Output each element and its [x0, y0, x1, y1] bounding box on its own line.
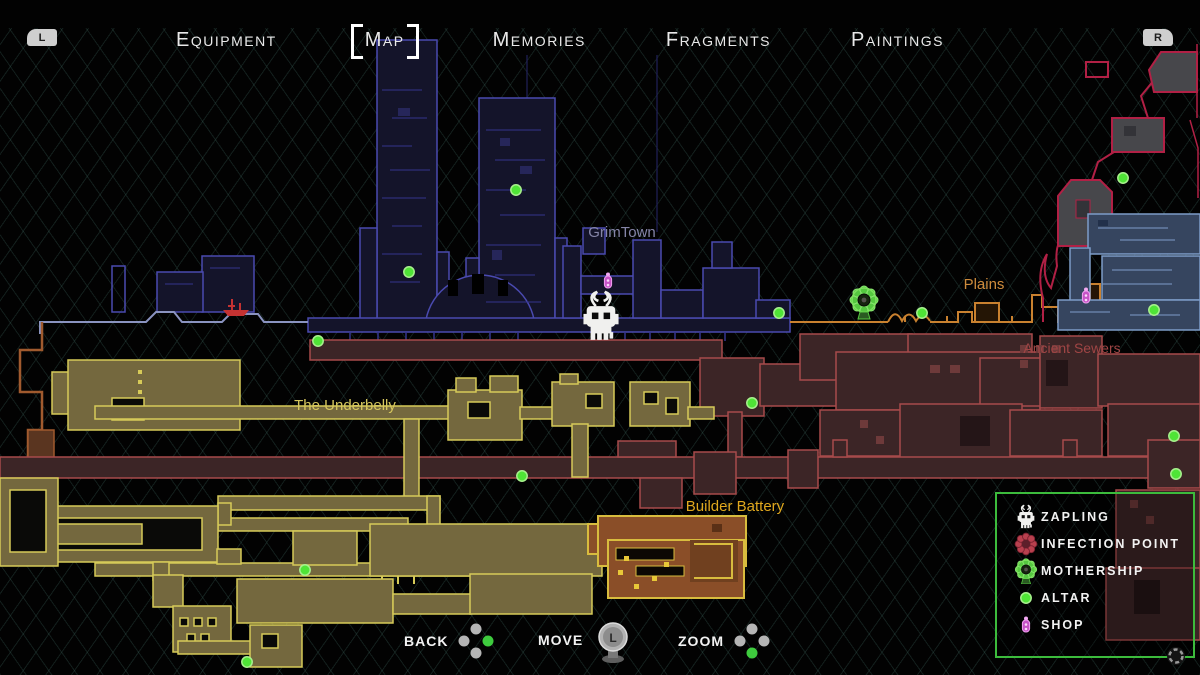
menu-tabs: Equipment Map Memories Fragments Paintin… [170, 26, 950, 55]
legend-row-zapling: ZAPLING [1011, 503, 1193, 530]
altar-marker [1171, 469, 1181, 479]
shop-icon [1011, 612, 1041, 638]
legend-label: MOTHERSHIP [1041, 564, 1144, 578]
tab-memories[interactable]: Memories [487, 26, 592, 55]
altar-marker [242, 657, 252, 667]
zoom-label: ZOOM [678, 633, 724, 649]
region-label-builder-battery: Builder Battery [686, 498, 785, 515]
map-region-grimtown [112, 40, 790, 341]
dpad-right-icon[interactable] [457, 622, 495, 660]
left-stick-icon[interactable]: L [592, 616, 634, 664]
altar-icon [1011, 585, 1041, 611]
map-screen: GrimTownPlainsAncient SewersThe Underbel… [0, 0, 1200, 675]
control-zoom: ZOOM [678, 622, 771, 660]
region-label-ancient-sewers: Ancient Sewers [1023, 340, 1120, 356]
altar-marker [747, 398, 757, 408]
zapling-icon [1011, 504, 1041, 530]
altar-marker [517, 471, 527, 481]
mothership-icon [1011, 558, 1041, 584]
legend-label: ZAPLING [1041, 510, 1110, 524]
autosave-spinner-icon [1165, 645, 1187, 672]
altar-marker [313, 336, 323, 346]
control-move: MOVE L [538, 616, 634, 664]
altar-marker [300, 565, 310, 575]
legend-row-mothership: MOTHERSHIP [1011, 557, 1193, 584]
region-label-grimtown: GrimTown [588, 224, 656, 241]
legend-label: SHOP [1041, 618, 1084, 632]
legend-label: INFECTION POINT [1041, 537, 1180, 551]
legend-row-infection-point: INFECTION POINT [1011, 530, 1193, 557]
altar-marker [917, 308, 927, 318]
region-label-the-underbelly: The Underbelly [294, 397, 396, 414]
altar-marker [1169, 431, 1179, 441]
tab-equipment[interactable]: Equipment [170, 26, 283, 55]
legend-label: ALTAR [1041, 591, 1092, 605]
legend-row-shop: SHOP [1011, 611, 1193, 638]
map-region-builder-battery [588, 516, 746, 598]
infection-point-icon [1011, 531, 1041, 557]
back-label: BACK [404, 633, 448, 649]
legend-row-altar: ALTAR [1011, 584, 1193, 611]
altar-marker [511, 185, 521, 195]
altar-marker [1118, 173, 1128, 183]
shoulder-button-L[interactable]: L [27, 29, 57, 46]
top-menu-bar: L Equipment Map Memories Fragments Paint… [0, 0, 1200, 58]
shoulder-button-R[interactable]: R [1143, 29, 1173, 46]
tab-fragments[interactable]: Fragments [660, 26, 777, 55]
mothership-marker [850, 286, 878, 319]
altar-marker [774, 308, 784, 318]
map-legend: ZAPLING INFECTION POINT MOTHERSHIP ALTAR… [995, 492, 1195, 658]
region-label-plains: Plains [964, 276, 1005, 293]
svg-text:L: L [610, 631, 617, 645]
shop-marker [604, 273, 611, 289]
tab-map[interactable]: Map [351, 26, 419, 55]
dpad-down-icon[interactable] [733, 622, 771, 660]
control-back: BACK [404, 622, 495, 660]
tab-paintings[interactable]: Paintings [845, 26, 950, 55]
altar-marker [1149, 305, 1159, 315]
altar-marker [404, 267, 414, 277]
move-label: MOVE [538, 632, 583, 648]
